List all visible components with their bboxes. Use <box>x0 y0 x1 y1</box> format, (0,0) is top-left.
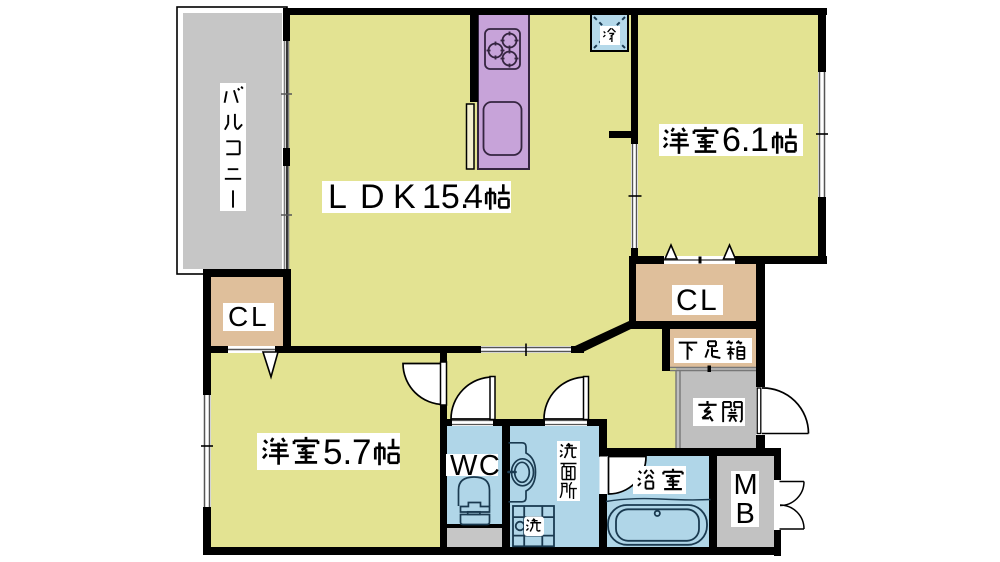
svg-text:WC: WC <box>450 450 501 482</box>
svg-text:C: C <box>676 284 698 317</box>
svg-text:7: 7 <box>352 433 371 472</box>
svg-text:L: L <box>251 301 267 332</box>
svg-text:L: L <box>328 178 347 216</box>
svg-text:1: 1 <box>750 121 769 159</box>
svg-text:L: L <box>700 284 717 317</box>
svg-text:D: D <box>360 178 385 216</box>
svg-text:B: B <box>736 498 755 530</box>
svg-text:K: K <box>393 178 416 216</box>
svg-text:5.: 5. <box>323 433 352 472</box>
svg-text:M: M <box>734 469 758 501</box>
svg-text:C: C <box>228 301 248 332</box>
svg-text:15.: 15. <box>422 178 469 216</box>
svg-text:6.: 6. <box>722 121 750 159</box>
svg-text:4: 4 <box>464 178 483 216</box>
